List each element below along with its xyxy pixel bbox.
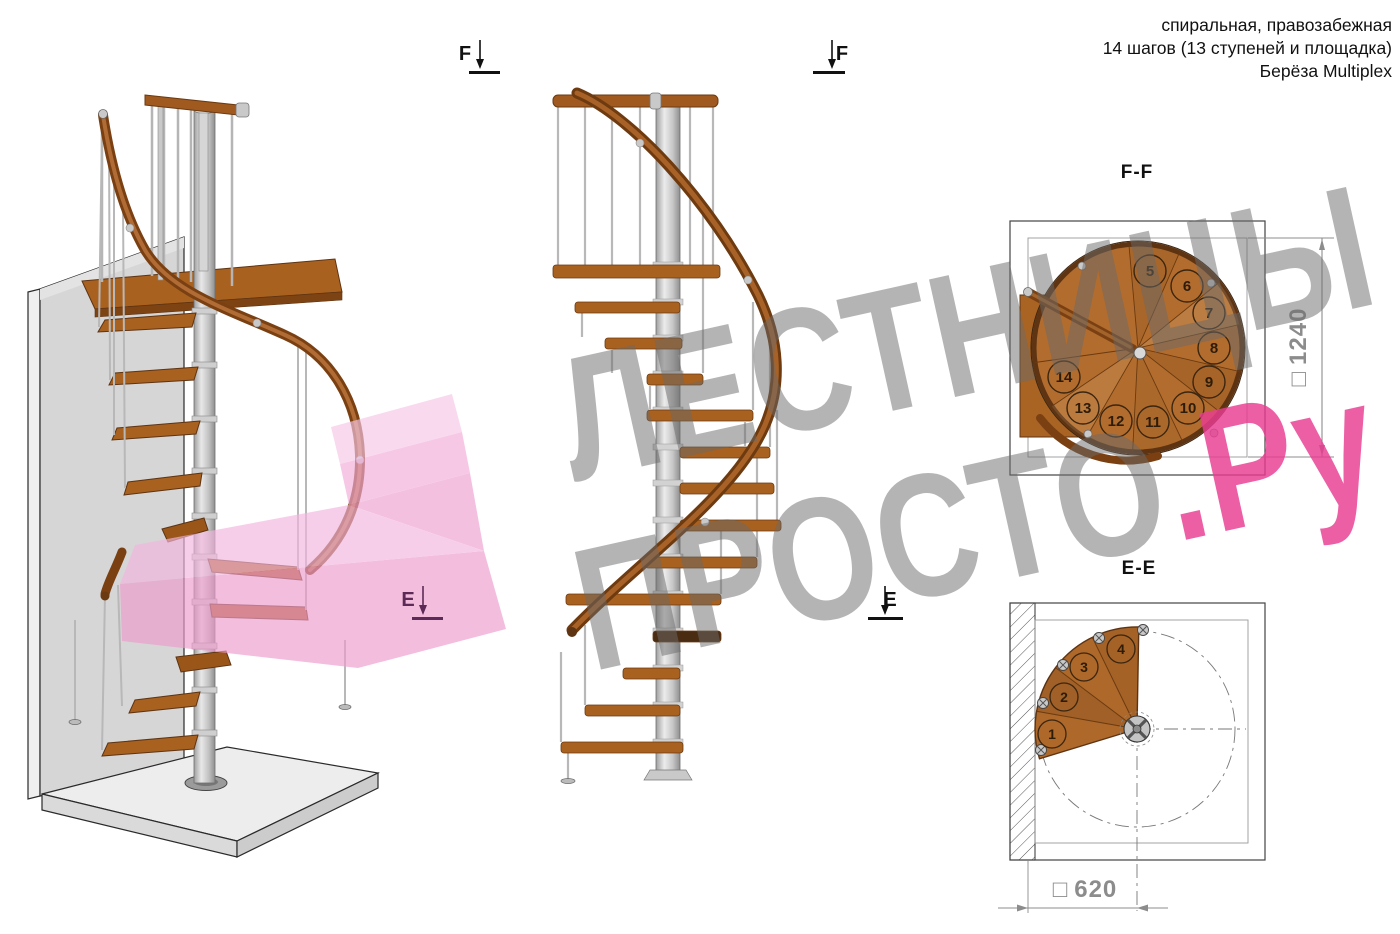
- ee-wall-hatch: [1010, 603, 1035, 860]
- annotation-line-type: спиральная, правозабежная: [1103, 14, 1392, 37]
- step-number: 14: [1056, 369, 1073, 386]
- annotation-block: спиральная, правозабежная 14 шагов (13 с…: [1103, 14, 1392, 83]
- section-letter: F: [836, 43, 848, 65]
- section-ff-view: 5 6 7 8 9 10 11 12 13 14: [990, 200, 1350, 500]
- baluster-foot: [339, 705, 351, 710]
- annotation-line-material: Берёза Multiplex: [1103, 60, 1392, 83]
- step-number: 2: [1060, 689, 1068, 705]
- step-number: 7: [1205, 305, 1213, 322]
- section-letter: F: [459, 43, 471, 65]
- ff-dimension-label: □1240: [1285, 308, 1312, 387]
- section-marker-f-left: F: [452, 32, 504, 78]
- step-number: 9: [1205, 374, 1213, 391]
- drawing-sheet: спиральная, правозабежная 14 шагов (13 с…: [0, 0, 1400, 934]
- section-letter: E: [401, 589, 414, 611]
- step-number: 13: [1075, 400, 1092, 417]
- step-number: 10: [1180, 400, 1197, 417]
- step-number: 3: [1080, 659, 1088, 675]
- section-marker-e-right: E: [861, 578, 913, 624]
- section-ff-title: F-F: [1092, 162, 1182, 184]
- baluster-foot: [561, 779, 575, 784]
- ff-dimension-value: 1240: [1285, 308, 1312, 365]
- ee-dimension-value: 620: [1074, 876, 1117, 903]
- pink-arrow-watermark: [100, 370, 530, 680]
- step-number: 6: [1183, 278, 1191, 295]
- section-ee-view: 1 2 3 4 □620: [990, 545, 1350, 934]
- step-number: 4: [1117, 641, 1125, 657]
- ee-dimension: □620: [998, 861, 1168, 913]
- step-number: 12: [1108, 413, 1125, 430]
- section-arrow-icon: [868, 586, 903, 620]
- section-arrow-icon: [469, 40, 500, 74]
- step-number: 11: [1145, 414, 1161, 431]
- square-symbol: □: [1053, 876, 1069, 903]
- step-number: 5: [1146, 263, 1154, 280]
- baluster-foot: [69, 720, 81, 725]
- section-arrow-icon: [412, 586, 443, 620]
- section-marker-e-left: E: [395, 578, 447, 624]
- section-marker-f-right: F: [808, 32, 860, 78]
- ee-dimension-label: □620: [1053, 876, 1118, 903]
- elevation-view: [530, 80, 920, 800]
- step-number: 1: [1048, 726, 1056, 742]
- square-symbol: □: [1285, 371, 1312, 387]
- annotation-line-steps: 14 шагов (13 ступеней и площадка): [1103, 37, 1392, 60]
- step-number: 8: [1210, 340, 1218, 357]
